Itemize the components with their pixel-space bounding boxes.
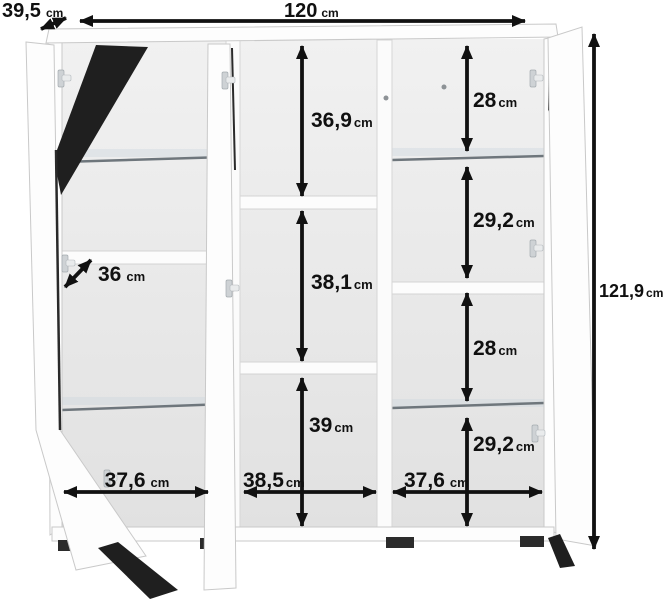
shelf-pin xyxy=(384,96,389,101)
cabinet-foot xyxy=(386,537,414,548)
center-door-open xyxy=(204,44,236,590)
right-door-panel xyxy=(548,27,596,546)
label-height-total: 121,9cm xyxy=(599,281,663,301)
label-width-total: 120cm xyxy=(284,0,339,22)
divider-center-right xyxy=(377,40,392,527)
cabinet-foot xyxy=(520,536,544,547)
solid-shelf xyxy=(392,282,544,294)
diagram-canvas: 120cm 39,5cm 121,9cm 36cm 36,9cm 38,1cm … xyxy=(0,0,663,600)
solid-shelf xyxy=(240,196,377,209)
right-door-open xyxy=(548,27,596,568)
label-depth-total: 39,5cm xyxy=(2,0,63,22)
solid-shelf xyxy=(240,362,377,374)
center-door-panel xyxy=(204,44,236,590)
shelf-pin xyxy=(442,85,447,90)
furniture-dimension-diagram: 120cm 39,5cm 121,9cm 36cm 36,9cm 38,1cm … xyxy=(0,0,663,600)
